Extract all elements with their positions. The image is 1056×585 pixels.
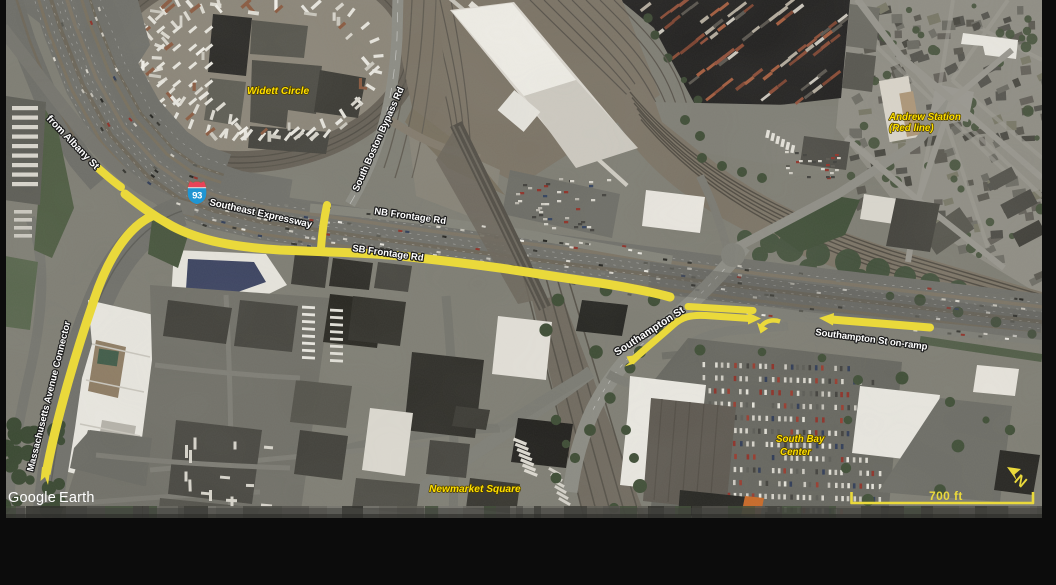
svg-text:Widett Circle: Widett Circle bbox=[247, 86, 310, 97]
svg-text:Newmarket Square: Newmarket Square bbox=[429, 484, 521, 495]
svg-text:Andrew Station: Andrew Station bbox=[888, 112, 961, 123]
svg-text:93: 93 bbox=[192, 191, 202, 202]
svg-text:Center: Center bbox=[780, 447, 812, 458]
svg-text:700 ft: 700 ft bbox=[929, 489, 963, 503]
svg-text:(Red line): (Red line) bbox=[889, 123, 934, 134]
svg-text:GoogleEarth: GoogleEarth bbox=[8, 490, 95, 506]
svg-text:South Bay: South Bay bbox=[776, 434, 825, 445]
